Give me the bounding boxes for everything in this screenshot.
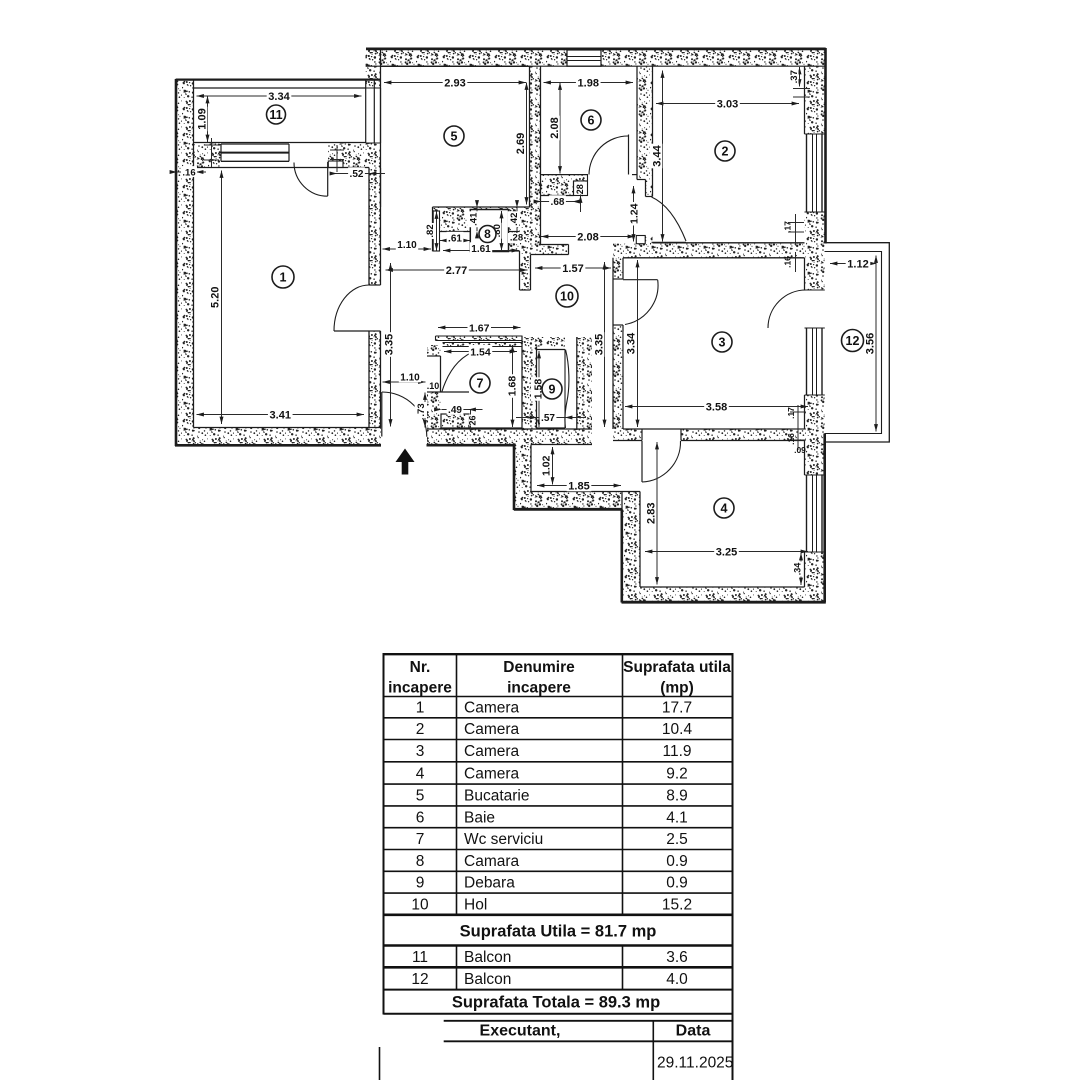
svg-text:Suprafata Utila = 81.7 mp: Suprafata Utila = 81.7 mp (460, 923, 657, 941)
svg-text:2.08: 2.08 (549, 117, 561, 138)
svg-text:2.77: 2.77 (446, 265, 467, 277)
svg-text:.68: .68 (551, 197, 565, 208)
svg-text:0.9: 0.9 (666, 853, 688, 870)
svg-text:3.56: 3.56 (864, 333, 876, 354)
svg-text:Camera: Camera (464, 743, 520, 760)
svg-text:Executant,: Executant, (480, 1023, 561, 1040)
svg-text:3.25: 3.25 (716, 546, 737, 558)
svg-text:2.08: 2.08 (577, 231, 598, 243)
svg-text:Baie: Baie (464, 809, 495, 826)
svg-text:1.98: 1.98 (578, 77, 599, 89)
svg-text:1.12: 1.12 (847, 258, 868, 270)
svg-text:Data: Data (676, 1023, 711, 1040)
svg-text:.16: .16 (182, 167, 195, 178)
svg-text:6: 6 (588, 113, 595, 127)
svg-text:3: 3 (416, 743, 425, 760)
svg-text:11: 11 (412, 949, 428, 966)
svg-text:incapere: incapere (507, 680, 571, 697)
svg-text:.17: .17 (786, 407, 796, 419)
svg-text:4: 4 (416, 765, 425, 782)
svg-text:1.57: 1.57 (562, 263, 583, 275)
svg-text:3.58: 3.58 (706, 401, 727, 413)
svg-text:2.83: 2.83 (645, 503, 657, 524)
svg-text:1.10: 1.10 (397, 240, 417, 251)
svg-text:8.9: 8.9 (666, 788, 688, 805)
svg-text:.42: .42 (509, 213, 520, 226)
svg-text:9.2: 9.2 (666, 765, 688, 782)
svg-text:.28: .28 (575, 184, 585, 197)
svg-text:(mp): (mp) (660, 680, 694, 697)
svg-text:1.85: 1.85 (568, 480, 589, 492)
svg-text:8: 8 (416, 853, 425, 870)
svg-text:3.34: 3.34 (625, 332, 637, 354)
svg-text:2.93: 2.93 (444, 77, 465, 89)
svg-text:1: 1 (280, 270, 287, 284)
svg-text:Denumire: Denumire (503, 659, 575, 676)
svg-text:29.11.2025: 29.11.2025 (657, 1055, 733, 1072)
svg-text:5: 5 (451, 129, 458, 143)
svg-text:11: 11 (269, 108, 282, 122)
svg-text:10: 10 (411, 896, 429, 913)
svg-text:3.44: 3.44 (651, 144, 663, 166)
svg-text:2: 2 (416, 721, 425, 738)
svg-text:.28: .28 (510, 233, 523, 244)
svg-text:2.69: 2.69 (515, 133, 527, 154)
svg-text:2.5: 2.5 (666, 831, 688, 848)
svg-text:7: 7 (416, 831, 425, 848)
svg-text:15.2: 15.2 (662, 896, 692, 913)
svg-text:Hol: Hol (464, 896, 487, 913)
svg-text:10: 10 (560, 289, 574, 303)
svg-text:.16: .16 (783, 256, 793, 268)
svg-text:Bucatarie: Bucatarie (464, 788, 529, 805)
svg-text:.61: .61 (448, 234, 462, 245)
svg-text:1.54: 1.54 (470, 346, 491, 358)
svg-text:12: 12 (846, 334, 860, 348)
svg-text:10.4: 10.4 (662, 721, 693, 738)
svg-text:Nr.: Nr. (410, 659, 431, 676)
svg-text:.10: .10 (427, 381, 440, 391)
svg-text:.82: .82 (425, 224, 436, 237)
svg-text:.73: .73 (416, 403, 427, 416)
svg-text:1.02: 1.02 (540, 455, 552, 476)
svg-text:.09: .09 (794, 445, 806, 455)
svg-text:4.0: 4.0 (666, 971, 688, 988)
svg-text:.34: .34 (793, 563, 803, 576)
svg-text:26: 26 (468, 415, 478, 425)
svg-text:7: 7 (477, 376, 484, 390)
svg-text:3.41: 3.41 (270, 409, 291, 421)
svg-text:1.67: 1.67 (469, 322, 490, 334)
svg-text:4: 4 (721, 501, 728, 515)
svg-text:.41: .41 (468, 212, 479, 226)
svg-text:.17: .17 (783, 221, 793, 233)
svg-text:incapere: incapere (388, 680, 452, 697)
svg-text:4.1: 4.1 (666, 809, 688, 826)
svg-text:3.03: 3.03 (717, 98, 738, 110)
svg-text:5.20: 5.20 (209, 287, 221, 308)
svg-text:.37: .37 (789, 70, 800, 83)
svg-text:.57: .57 (541, 413, 555, 424)
svg-text:8: 8 (484, 227, 491, 241)
svg-text:Camera: Camera (464, 700, 520, 717)
svg-text:Wc serviciu: Wc serviciu (464, 831, 543, 848)
svg-text:.49: .49 (448, 405, 462, 416)
svg-text:6: 6 (416, 809, 425, 826)
svg-text:9: 9 (549, 382, 556, 396)
svg-text:Balcon: Balcon (464, 971, 511, 988)
svg-text:.16: .16 (786, 433, 796, 445)
svg-text:Camera: Camera (464, 721, 520, 738)
svg-text:5: 5 (416, 788, 425, 805)
svg-text:Camara: Camara (464, 853, 520, 870)
svg-text:Balcon: Balcon (464, 949, 511, 966)
svg-text:11.9: 11.9 (662, 743, 691, 760)
svg-text:3.35: 3.35 (383, 334, 395, 355)
svg-text:3.35: 3.35 (593, 334, 605, 355)
svg-text:1.24: 1.24 (628, 203, 640, 224)
svg-text:12: 12 (411, 971, 428, 988)
svg-text:Debara: Debara (464, 875, 515, 892)
svg-text:1.10: 1.10 (400, 373, 420, 384)
svg-text:1: 1 (416, 700, 425, 717)
svg-text:Camera: Camera (464, 765, 520, 782)
svg-text:Suprafata Totala = 89.3 mp: Suprafata Totala = 89.3 mp (452, 994, 660, 1012)
svg-text:17.7: 17.7 (662, 700, 692, 717)
svg-text:9: 9 (416, 875, 425, 892)
svg-text:1.09: 1.09 (196, 108, 208, 129)
svg-text:3: 3 (719, 335, 726, 349)
svg-text:.52: .52 (350, 169, 364, 180)
svg-text:Suprafata utila: Suprafata utila (623, 659, 731, 676)
svg-text:1.61: 1.61 (471, 244, 491, 255)
svg-text:1.68: 1.68 (506, 376, 518, 397)
svg-text:0.9: 0.9 (666, 875, 688, 892)
svg-text:3.6: 3.6 (666, 949, 688, 966)
svg-text:3.34: 3.34 (268, 91, 290, 103)
svg-text:2: 2 (722, 144, 729, 158)
